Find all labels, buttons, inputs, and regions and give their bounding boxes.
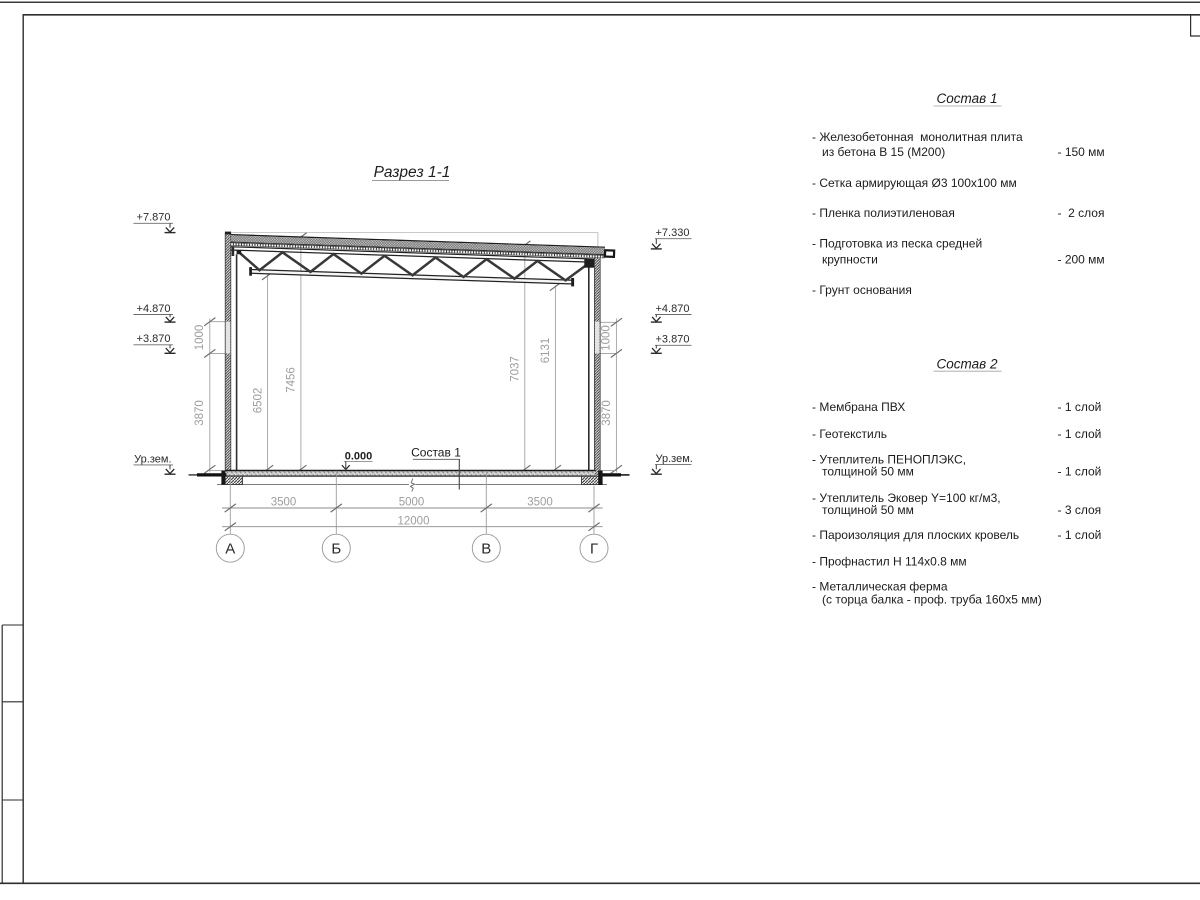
svg-text:- 1 слой: - 1 слой	[1058, 465, 1102, 479]
svg-text:- 1 слой: - 1 слой	[1058, 528, 1102, 542]
svg-text:6131: 6131	[540, 338, 552, 364]
svg-text:- Пароизоляция для плоских кро: - Пароизоляция для плоских кровель	[812, 528, 1019, 542]
svg-text:+3.870: +3.870	[137, 333, 171, 345]
svg-text:1000: 1000	[601, 325, 613, 351]
svg-text:- 150 мм: - 150 мм	[1058, 145, 1105, 159]
svg-text:3500: 3500	[527, 497, 553, 509]
svg-text:- 2 слоя: - 2 слоя	[1058, 206, 1105, 220]
svg-text:- 1 слой: - 1 слой	[1058, 427, 1102, 441]
svg-text:Ур.зем.: Ур.зем.	[134, 453, 171, 465]
svg-text:12000: 12000	[398, 515, 430, 527]
svg-text:0.000: 0.000	[345, 450, 373, 462]
svg-text:+7.870: +7.870	[137, 212, 171, 224]
svg-text:- Профнастил Н 114х0.8 мм: - Профнастил Н 114х0.8 мм	[812, 555, 967, 569]
svg-text:Состав 1: Состав 1	[411, 446, 461, 460]
svg-text:- Пленка полиэтиленовая: - Пленка полиэтиленовая	[812, 206, 955, 220]
svg-text:А: А	[225, 541, 235, 558]
svg-text:- Подготовка из песка средней: - Подготовка из песка средней	[812, 237, 982, 251]
svg-text:- Сетка армирующая Ø3 100х100: - Сетка армирующая Ø3 100х100 мм	[812, 176, 1017, 190]
svg-text:- 200 мм: - 200 мм	[1058, 252, 1105, 266]
svg-text:6502: 6502	[252, 388, 264, 414]
svg-text:Г: Г	[590, 541, 598, 558]
svg-text:из бетона В 15 (М200): из бетона В 15 (М200)	[822, 145, 945, 159]
svg-text:Состав 2: Состав 2	[937, 356, 998, 371]
svg-text:крупности: крупности	[822, 252, 878, 266]
svg-text:- Грунт основания: - Грунт основания	[812, 283, 912, 297]
svg-text:3500: 3500	[271, 497, 297, 509]
svg-text:+7.330: +7.330	[656, 227, 690, 239]
svg-text:1000: 1000	[194, 325, 206, 351]
svg-text:3870: 3870	[601, 400, 613, 426]
svg-text:- Металлическая ферма: - Металлическая ферма	[812, 580, 948, 594]
svg-text:7037: 7037	[510, 356, 522, 382]
svg-text:+4.870: +4.870	[656, 303, 690, 315]
svg-text:- 1 слой: - 1 слой	[1058, 400, 1102, 414]
svg-text:- Мембрана ПВХ: - Мембрана ПВХ	[812, 400, 905, 414]
svg-text:толщиной 50 мм: толщиной 50 мм	[822, 503, 914, 517]
svg-text:Ур.зем.: Ур.зем.	[656, 453, 693, 465]
svg-text:- Железобетонная монолитная п: - Железобетонная монолитная плита	[812, 130, 1023, 144]
svg-text:- Геотекстиль: - Геотекстиль	[812, 427, 887, 441]
svg-text:(с торца балка - проф. труба 1: (с торца балка - проф. труба 160х5 мм)	[822, 593, 1042, 607]
svg-text:Б: Б	[331, 541, 341, 558]
svg-text:- 3 слоя: - 3 слоя	[1058, 503, 1102, 517]
svg-text:толщиной 50 мм: толщиной 50 мм	[822, 465, 914, 479]
svg-text:7456: 7456	[286, 367, 298, 393]
svg-text:5000: 5000	[399, 497, 425, 509]
svg-text:3870: 3870	[194, 400, 206, 426]
svg-text:В: В	[481, 541, 491, 558]
svg-text:+3.870: +3.870	[656, 334, 690, 346]
svg-text:+4.870: +4.870	[137, 303, 171, 315]
svg-text:Разрез 1-1: Разрез 1-1	[374, 164, 451, 181]
svg-text:Состав 1: Состав 1	[937, 91, 998, 106]
